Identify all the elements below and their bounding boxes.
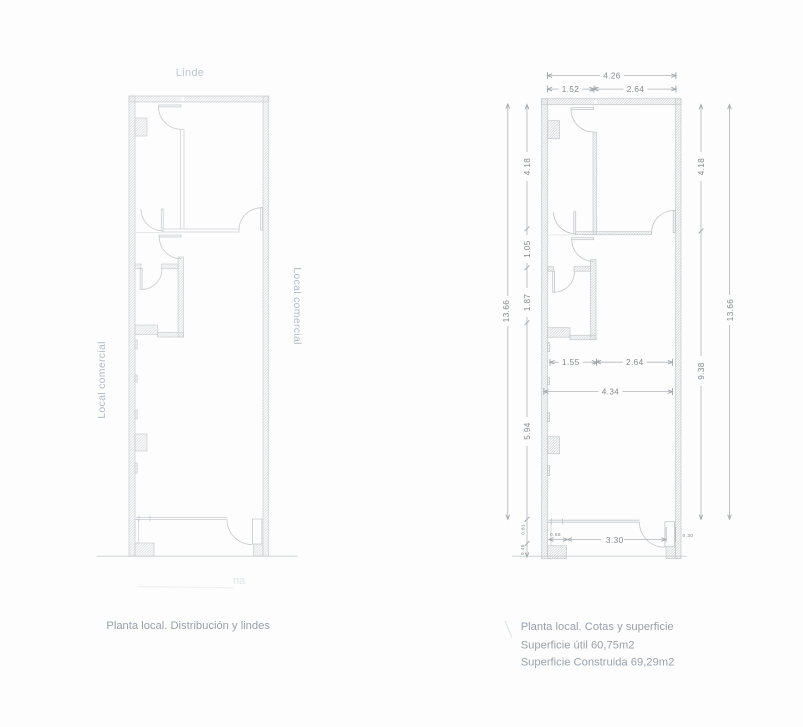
svg-text:9.38: 9.38 <box>697 362 706 380</box>
svg-text:4.18: 4.18 <box>523 158 532 176</box>
svg-text:0.45: 0.45 <box>520 544 526 555</box>
svg-text:1.87: 1.87 <box>523 294 532 312</box>
svg-text:2.64: 2.64 <box>627 85 645 94</box>
svg-text:na: na <box>233 575 246 587</box>
svg-text:4.18: 4.18 <box>697 158 706 176</box>
svg-text:Linde: Linde <box>176 67 204 79</box>
svg-text:0.68: 0.68 <box>550 532 561 538</box>
svg-text:Planta local. Distribución y l: Planta local. Distribución y lindes <box>106 620 270 632</box>
svg-text:2.64: 2.64 <box>626 358 644 367</box>
svg-text:1.05: 1.05 <box>523 240 532 258</box>
svg-text:Superficie útil 60,75m2: Superficie útil 60,75m2 <box>521 640 635 652</box>
svg-text:0.81: 0.81 <box>520 524 526 535</box>
svg-text:Superficie Construida 69,29m2: Superficie Construida 69,29m2 <box>521 657 675 669</box>
svg-text:13.66: 13.66 <box>726 299 735 322</box>
svg-text:Local comercial: Local comercial <box>96 341 108 418</box>
svg-text:Local comercial: Local comercial <box>291 267 303 344</box>
svg-text:1.55: 1.55 <box>562 358 580 367</box>
svg-text:4.26: 4.26 <box>603 72 621 81</box>
svg-text:4.34: 4.34 <box>602 388 620 397</box>
svg-text:Planta local. Cotas y superfic: Planta local. Cotas y superficie <box>521 621 674 633</box>
svg-text:3.30: 3.30 <box>606 535 624 545</box>
svg-text:0.30: 0.30 <box>683 533 694 539</box>
svg-text:13.66: 13.66 <box>502 300 511 323</box>
svg-text:1.52: 1.52 <box>562 85 580 94</box>
svg-text:5.94: 5.94 <box>523 422 532 440</box>
